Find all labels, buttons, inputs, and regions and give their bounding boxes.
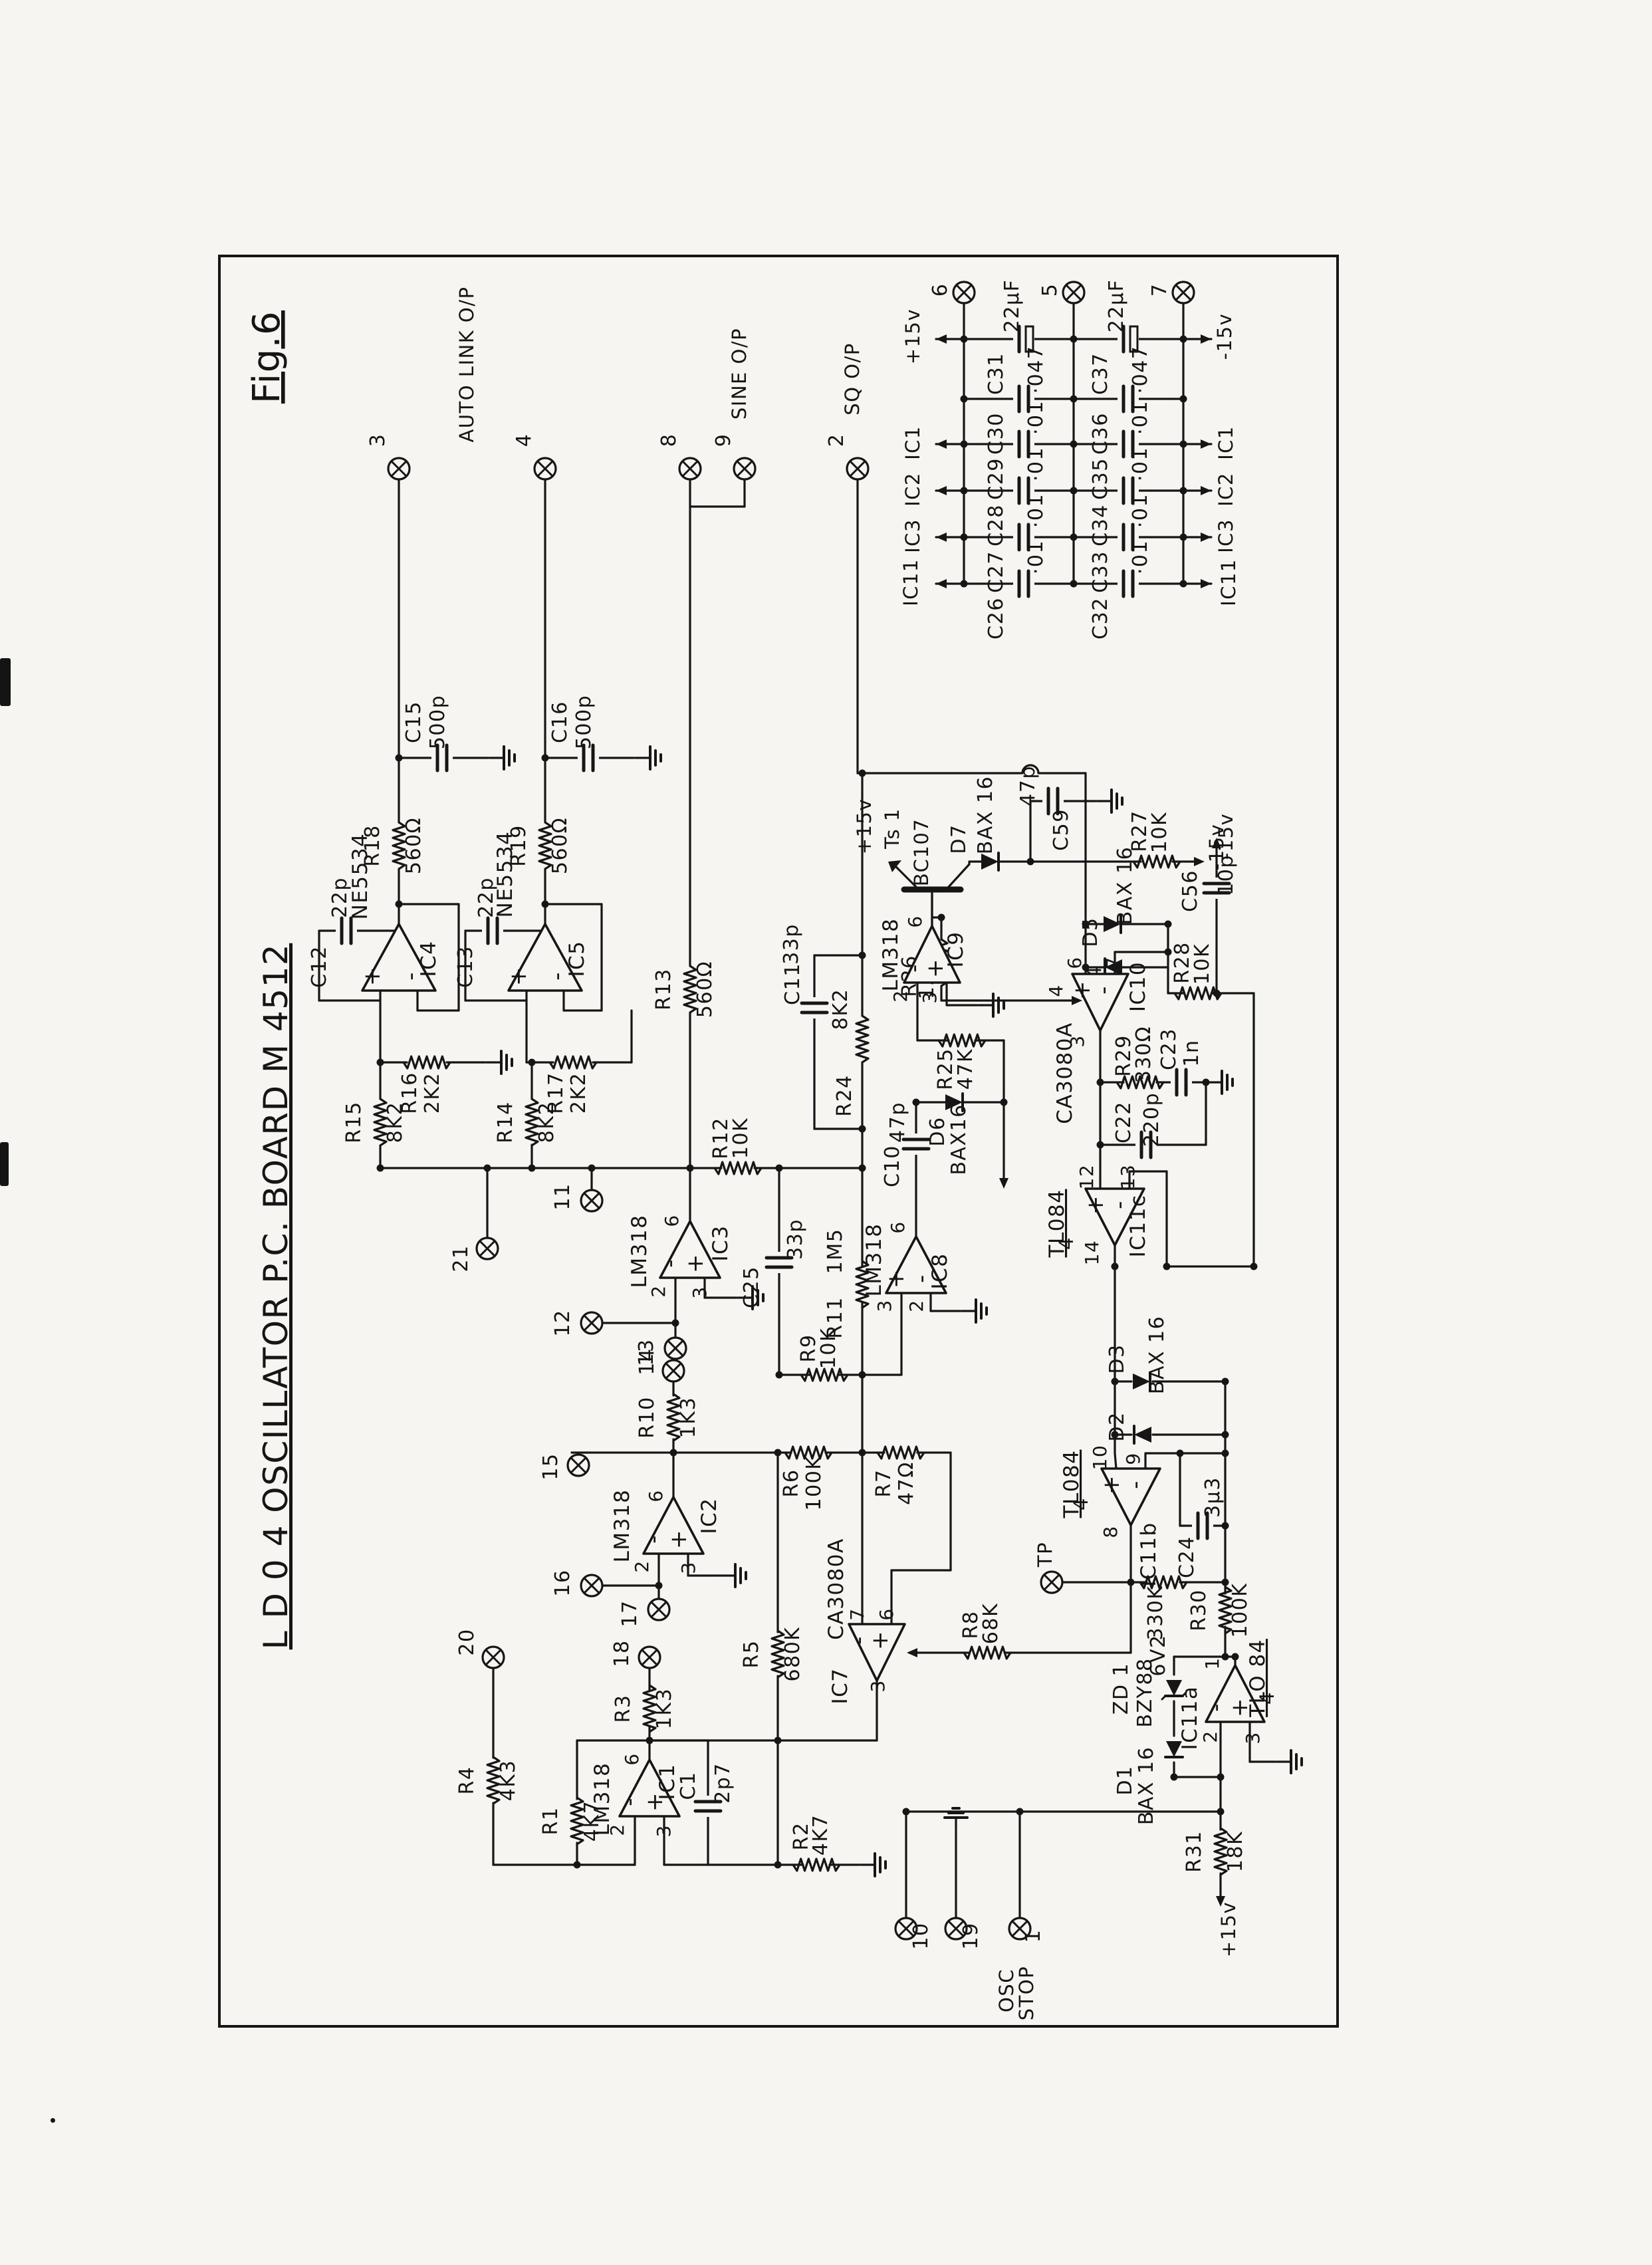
capacitor-name: C23 [1157, 1028, 1181, 1070]
resistor-name: R13 [652, 968, 675, 1011]
capacitor-value: ·01 [1024, 400, 1048, 435]
junction-dot [1163, 1263, 1171, 1270]
diode-name: ZD 1 [1110, 1663, 1133, 1715]
opamp-sign: - [1090, 985, 1117, 995]
opamp-sign: - [1122, 1480, 1149, 1489]
capacitor-name: C37 [1089, 352, 1112, 395]
junction-dot [1232, 1653, 1239, 1661]
terminal-number: 15 [539, 1453, 562, 1480]
arrow-icon [936, 533, 947, 542]
pin-number: 14 [1081, 1240, 1103, 1266]
capacitor-name: C15 [402, 701, 425, 743]
terminal-number: 3 [366, 433, 390, 447]
junction-dot [687, 1165, 694, 1172]
pin-number: 3 [1242, 1731, 1264, 1744]
wire [1115, 1453, 1116, 1469]
resistor-value: 560Ω [548, 817, 572, 874]
pin-number: 12 [1076, 1164, 1098, 1190]
arrow-icon [936, 439, 947, 449]
capacitor-value: 47p [1016, 765, 1040, 806]
resistor-name: R24 [833, 1074, 856, 1117]
opamp-name: IC10 [1126, 961, 1150, 1012]
capacitor-name: C16 [548, 701, 572, 743]
junction-dot [1222, 1450, 1229, 1457]
terminal-number: 5 [1038, 283, 1062, 297]
junction-dot [1070, 441, 1078, 448]
resistor-value: 680K [781, 1627, 804, 1682]
junction-dot [1180, 487, 1187, 495]
junction-dot [961, 396, 968, 403]
opamp-name: IC5 [565, 940, 589, 977]
scan-artifact [0, 1142, 9, 1186]
capacitor-name: C29 [985, 457, 1008, 500]
pin-number: 6 [645, 1489, 667, 1502]
opamp-name: IC3 [709, 1225, 733, 1261]
wire [949, 864, 969, 887]
resistor-value: 8K2 [829, 989, 852, 1030]
diode-name: D3 [1106, 1344, 1129, 1373]
resistor-name: R16 [398, 1072, 421, 1114]
capacitor-name: C35 [1089, 457, 1112, 500]
text-label: +15v [901, 308, 924, 364]
terminal-number: 18 [610, 1639, 634, 1667]
opamp-name: IC1 [655, 1763, 679, 1800]
opamp-name: IC11c [1126, 1195, 1150, 1258]
opamp-sign: - [657, 1258, 683, 1268]
junction-dot [1203, 1079, 1210, 1086]
capacitor-value: 22µF [1001, 279, 1024, 333]
terminal-number: 4 [513, 433, 536, 447]
junction-dot [1070, 580, 1078, 588]
terminal-number: 20 [455, 1628, 479, 1655]
junction-dot [1082, 921, 1090, 928]
text-label: SINE O/P [728, 328, 751, 419]
capacitor-name: C10 [881, 1145, 904, 1187]
diode-part: BAX 16 [1135, 1746, 1158, 1825]
diode-name: D7 [947, 824, 971, 854]
opamp-name: IC4 [417, 940, 441, 977]
junction-dot [1001, 1099, 1008, 1106]
resistor-value: 4K7 [809, 1814, 832, 1855]
junction-dot [670, 1449, 677, 1457]
resistor-value: 2K2 [567, 1072, 590, 1114]
resistor-value: 47K [954, 1048, 977, 1090]
capacitor-name: C13 [454, 945, 477, 988]
resistor-name: R15 [342, 1101, 366, 1143]
arrow-icon [1201, 334, 1211, 344]
resistor-name: R31 [1183, 1830, 1206, 1873]
cap-mask [1013, 573, 1034, 594]
opamp-sign: + [883, 1268, 909, 1288]
opamp-part-denominator: 4 [1070, 1497, 1092, 1510]
text-label: +15v [1217, 1901, 1240, 1957]
junction-dot [1112, 1263, 1119, 1270]
pin-number: 2 [905, 1299, 927, 1312]
junction-dot [961, 580, 968, 588]
junction-dot [377, 1059, 384, 1066]
junction-dot [529, 1059, 536, 1066]
capacitor-name: C33 [1089, 550, 1112, 593]
terminal-number: 11 [551, 1183, 574, 1210]
capacitor-value: ·01 [1129, 540, 1152, 574]
resistor-name: R4 [455, 1766, 479, 1795]
pin-number: 6 [887, 1221, 909, 1233]
capacitor-value: 3µ3 [1201, 1477, 1225, 1518]
junction-dot [1027, 858, 1034, 866]
pin-number: 7 [1102, 956, 1124, 969]
text-label: STOP [1015, 1966, 1038, 2020]
junction-dot [859, 1371, 866, 1379]
resistor-glyph [550, 1056, 596, 1068]
cap-mask [1171, 1072, 1192, 1093]
scanned-schematic-page: Fig.6L D 0 4 OSCILLATOR P.C. BOARD M 451… [0, 0, 1652, 2265]
resistor-value: 100K [802, 1456, 826, 1511]
junction-dot [542, 901, 549, 908]
pin-number: 2 [889, 989, 911, 1002]
opamp-name: IC2 [697, 1497, 721, 1534]
pin-number: 6 [661, 1214, 683, 1227]
junction-dot [1070, 534, 1078, 541]
opamp-name: IC7 [828, 1667, 852, 1704]
junction-dot [859, 1126, 866, 1133]
arrow-icon [1201, 533, 1211, 542]
opamp-sign: + [1082, 1195, 1109, 1215]
opamp-sign: + [505, 966, 532, 986]
pin-number: 2 [631, 1560, 653, 1572]
opamp-sign: - [640, 1534, 667, 1544]
junction-dot [961, 487, 968, 495]
resistor-value: 1K3 [653, 1688, 676, 1729]
junction-dot [961, 534, 968, 541]
text-label: TP [1034, 1542, 1056, 1568]
terminal-number: 16 [551, 1569, 574, 1596]
junction-dot [1222, 1579, 1229, 1586]
pin-number: 3 [874, 1299, 895, 1312]
text-label: IC2 [1215, 472, 1237, 507]
capacitor-value: ·01 [1024, 447, 1048, 481]
resistor-name: R30 [1187, 1589, 1211, 1631]
junction-dot [961, 336, 968, 343]
pin-number: 3 [1066, 1034, 1088, 1047]
opamp-part: LM318 [628, 1215, 651, 1288]
junction-dot [1082, 964, 1090, 971]
terminal-number: 21 [449, 1245, 473, 1272]
junction-dot [1180, 441, 1187, 448]
scan-artifact [0, 658, 11, 706]
terminal-number: 9 [712, 433, 735, 447]
pin-number: 4 [1045, 984, 1067, 997]
junction-dot [1222, 1431, 1229, 1439]
junction-dot [1177, 1450, 1184, 1457]
wire [1162, 1696, 1165, 1699]
cap-mask [804, 997, 825, 1018]
pin-number: 3 [677, 1561, 699, 1574]
junction-dot [655, 1582, 663, 1590]
junction-dot [859, 1449, 866, 1457]
opamp-part-denominator: 4 [1055, 1237, 1078, 1250]
text-label: IC11 [1217, 558, 1240, 606]
cap-mask [336, 920, 357, 941]
capacitor-value: 500p [572, 695, 596, 749]
capacitor-value: ·047 [1129, 346, 1152, 394]
pin-number: 10 [1089, 1445, 1111, 1471]
capacitor-value: ·01 [1024, 540, 1048, 574]
pin-number: 7 [846, 1608, 868, 1620]
junction-dot [1097, 1079, 1104, 1086]
opamp-name: IC11b [1137, 1522, 1161, 1586]
resistor-name: R14 [494, 1101, 517, 1143]
junction-dot [542, 755, 549, 762]
junction-dot [574, 1861, 581, 1869]
text-label: IC1 [1215, 425, 1237, 460]
junction-dot [1217, 1774, 1225, 1781]
junction-dot [903, 1808, 910, 1816]
capacitor-value: 2p7 [711, 1762, 735, 1804]
junction-dot [859, 1165, 866, 1172]
capacitor-value: 33p [780, 923, 803, 965]
capacitor-name: C11 [781, 963, 804, 1005]
resistor-value: 10K [817, 1328, 840, 1369]
cap-mask [482, 920, 503, 941]
resistor-value: 10K [1191, 943, 1214, 985]
junction-dot [776, 1165, 783, 1172]
diode-value: 6V2 [1147, 1634, 1170, 1676]
capacitor-value: ·01 [1129, 493, 1152, 528]
junction-dot [859, 952, 866, 959]
resistor-name: R3 [612, 1695, 635, 1723]
junction-dot [646, 1737, 653, 1744]
terminal-number: 8 [657, 433, 681, 447]
text-label: IC3 [901, 519, 924, 553]
diode-name: D5 [1079, 917, 1102, 947]
junction-dot [588, 1165, 596, 1172]
diode-name: D1 [1114, 1765, 1137, 1795]
pin-number: 2 [648, 1284, 669, 1297]
resistor-glyph [404, 1056, 450, 1068]
resistor-value: 100K [1229, 1583, 1252, 1638]
junction-dot [1180, 336, 1187, 343]
resistor-value: 1M5 [824, 1229, 847, 1274]
terminal-number: 1 [1022, 1929, 1045, 1943]
junction-dot [1112, 1378, 1119, 1385]
resistor-value: 560Ω [402, 817, 425, 874]
resistor-value: 1K3 [677, 1397, 700, 1438]
opamp-sign: + [682, 1253, 709, 1273]
pin-number: 13 [1117, 1164, 1139, 1190]
junction-dot [1165, 949, 1172, 956]
cap-mask [1118, 573, 1139, 594]
resistor-value: 330K [1144, 1586, 1167, 1641]
resistor-value: 10K [1148, 812, 1171, 853]
capacitor-name: C30 [985, 412, 1008, 455]
junction-dot [1180, 396, 1187, 403]
terminal-number: 19 [959, 1922, 983, 1949]
junction-dot [1171, 1774, 1178, 1781]
capacitor-name: C36 [1089, 412, 1112, 455]
capacitor-name: C22 [1112, 1101, 1135, 1143]
pin-number: 3 [689, 1286, 711, 1298]
pin-number: 8 [1100, 1525, 1121, 1538]
opamp-sign: + [867, 1630, 893, 1650]
arrow-icon [1201, 579, 1211, 588]
figure-label: Fig.6 [245, 310, 289, 404]
capacitor-value: 10p [1215, 854, 1238, 895]
capacitor-value: 47p [886, 1102, 909, 1143]
junction-dot [672, 1320, 679, 1327]
resistor-glyph [964, 1647, 1010, 1659]
junction-dot [774, 1449, 782, 1457]
capacitor-name: C24 [1175, 1536, 1199, 1578]
junction-dot [1217, 1808, 1225, 1816]
capacitor-name: C32 [1089, 597, 1112, 640]
resistor-name: R1 [539, 1807, 562, 1836]
junction-dot [1097, 1141, 1104, 1149]
resistor-value: 47Ω [895, 1461, 918, 1505]
junction-dot [1222, 1378, 1229, 1385]
schematic-canvas: Fig.6L D 0 4 OSCILLATOR P.C. BOARD M 451… [0, 0, 1652, 2265]
capacitor-name: C28 [985, 504, 1008, 546]
pin-number: 6 [904, 915, 926, 927]
junction-dot [1180, 580, 1187, 588]
opamp-sign: + [665, 1529, 692, 1549]
text-label: +15v [853, 798, 876, 854]
opamp-part: LM318 [862, 1223, 886, 1297]
capacitor-name: C31 [985, 352, 1008, 395]
junction-dot [396, 755, 403, 762]
text-label: AUTO LINK O/P [455, 286, 478, 442]
capacitor-name: C27 [985, 550, 1008, 593]
junction-dot [1213, 990, 1221, 997]
cap-mask [578, 747, 599, 769]
terminal-number: 7 [1148, 283, 1171, 297]
capacitor-value: 220p [1140, 1092, 1163, 1147]
arrow-icon [1194, 857, 1205, 866]
resistor-name: R5 [740, 1640, 763, 1669]
opamp-part: LM318 [879, 918, 903, 992]
text-label: -15v [1215, 813, 1237, 860]
junction-dot [1165, 921, 1172, 928]
opamp-name: IC9 [944, 931, 968, 967]
pin-number: 3 [919, 991, 941, 1003]
opamp-sign: - [616, 1797, 643, 1806]
capacitor-value: ·01 [1024, 493, 1048, 528]
junction-dot [377, 1165, 384, 1172]
junction-dot [1127, 1579, 1135, 1586]
resistor-name: R6 [780, 1469, 803, 1498]
pin-number: 3 [653, 1824, 675, 1837]
junction-dot [529, 1165, 536, 1172]
junction-dot [1250, 1263, 1258, 1270]
terminal-number: 14 [636, 1348, 659, 1375]
text-label: IC3 [1215, 519, 1237, 553]
resistor-value: 10K [729, 1118, 753, 1159]
capacitor-value: 1n [1180, 1039, 1203, 1066]
diode-part: BAX 16 [1114, 846, 1137, 925]
opamp-part: NE5534 [493, 831, 517, 918]
junction-dot [961, 441, 968, 448]
junction-dot [1222, 1522, 1229, 1530]
opamp-sign: + [1098, 1475, 1125, 1494]
diode-part: BAX 16 [1145, 1316, 1169, 1394]
opamp-part-denominator: 4 [1256, 1691, 1278, 1705]
resistor-glyph [856, 1016, 868, 1062]
capacitor-name: C56 [1179, 870, 1202, 912]
terminal-number: 10 [909, 1922, 933, 1949]
capacitor-value: 33p [784, 1219, 807, 1260]
terminal-number: 6 [929, 283, 952, 297]
capacitor-value: ·01 [1129, 400, 1152, 435]
diode-part: BAX 16 [974, 776, 997, 854]
capacitor-name: C26 [985, 597, 1008, 640]
capacitor-value: ·01 [1129, 447, 1152, 481]
resistor-name: R10 [636, 1396, 659, 1439]
pin-number: 6 [621, 1752, 643, 1765]
opamp-sign: + [359, 966, 386, 986]
opamp-part: CA3080A [824, 1538, 848, 1639]
diode-name: D6 [926, 1116, 949, 1146]
resistor-value: 68K [979, 1603, 1003, 1644]
junction-dot [484, 1165, 491, 1172]
arrow-icon [936, 334, 947, 344]
resistor-value: 2K2 [421, 1072, 444, 1114]
pin-number: 9 [1122, 1452, 1144, 1465]
arrow-icon [999, 1178, 1008, 1189]
capacitor-name: C59 [1050, 808, 1073, 851]
opamp-part: NE5534 [348, 833, 372, 920]
junction-dot [774, 1861, 782, 1869]
arrow-icon [936, 579, 947, 588]
text-label: -15v [1213, 313, 1236, 360]
opamp-part: LM318 [610, 1489, 634, 1563]
drawing-title: L D 0 4 OSCILLATOR P.C. BOARD M 4512 [257, 943, 295, 1650]
capacitor-value: ·047 [1024, 346, 1048, 394]
opamp-sign: - [1203, 1703, 1229, 1712]
capacitor-name: C12 [308, 945, 331, 988]
capacitor-value: 500p [426, 695, 449, 749]
arrow-icon [907, 1648, 917, 1657]
junction-dot [859, 770, 866, 777]
arrow-icon [1201, 486, 1211, 495]
pin-number: 6 [876, 1608, 897, 1620]
junction-dot [1070, 396, 1078, 403]
junction-dot [396, 901, 403, 908]
resistor-name: R17 [544, 1072, 568, 1114]
arrow-icon [936, 486, 947, 495]
junction-dot [1222, 1653, 1229, 1661]
text-label: BC107 [910, 818, 933, 887]
pin-number: 1 [1201, 1657, 1223, 1669]
resistor-name: R7 [872, 1469, 895, 1498]
capacitor-value: 22µF [1105, 279, 1128, 333]
pin-number: 2 [1199, 1730, 1221, 1742]
junction-dot [913, 1099, 920, 1106]
text-label: SQ O/P [841, 342, 864, 416]
junction-dot [938, 914, 945, 921]
diode-part: BAX16 [947, 1104, 971, 1175]
junction-dot [1180, 534, 1187, 541]
resistor-value: 560Ω [693, 961, 717, 1018]
arrow-icon [1201, 439, 1211, 449]
junction-dot [1016, 1808, 1024, 1816]
diode-glyph [981, 854, 999, 870]
capacitor-name: C1 [677, 1771, 700, 1800]
resistor-value: 330Ω [1132, 1026, 1155, 1083]
diode-glyph [1134, 1427, 1151, 1443]
pin-number: 3 [867, 1679, 889, 1692]
text-label: Ts 1 [881, 808, 903, 850]
opamp-part: TLO 84 [1246, 1639, 1270, 1718]
opamp-name: IC11a [1178, 1686, 1202, 1750]
